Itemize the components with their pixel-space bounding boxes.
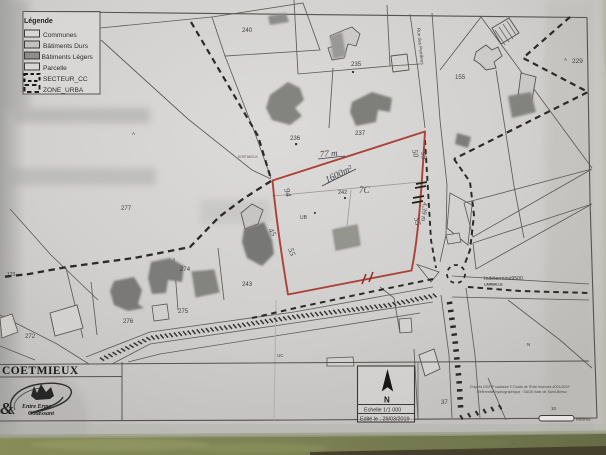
svg-text:ZONE_URBA: ZONE_URBA: [43, 87, 84, 94]
svg-text:95: 95: [419, 151, 429, 160]
svg-text:Parcelle: Parcelle: [43, 65, 67, 72]
svg-text:235: 235: [351, 61, 362, 68]
svg-text:7C: 7C: [359, 185, 371, 195]
svg-text:275: 275: [178, 308, 189, 315]
svg-text:UC: UC: [277, 353, 284, 358]
svg-text:Gouessant: Gouessant: [28, 411, 54, 417]
svg-text:274: 274: [180, 266, 191, 273]
svg-text:10: 10: [551, 406, 557, 411]
svg-text:SECTEUR_CC: SECTEUR_CC: [43, 76, 88, 83]
svg-text:Echelle 1/1 000: Echelle 1/1 000: [364, 408, 401, 414]
svg-text:A: A: [132, 131, 135, 136]
svg-text:D'après DGFiP cadastre © Droit: D'après DGFiP cadastre © Droits de l'Eta…: [470, 385, 569, 389]
svg-text:Edité le : 29/03/2019: Edité le : 29/03/2019: [360, 417, 409, 423]
svg-text:237: 237: [355, 130, 366, 137]
svg-text:Bâtiments Légers: Bâtiments Légers: [42, 54, 94, 61]
svg-text:236: 236: [290, 135, 301, 142]
svg-text:276: 276: [123, 318, 134, 325]
svg-text:Indéterminé9500: Indéterminé9500: [484, 276, 523, 282]
svg-text:UB: UB: [300, 215, 308, 221]
svg-text:Entre Erme: Entre Erme: [21, 404, 52, 410]
svg-text:SORTIMIEUX: SORTIMIEUX: [238, 155, 259, 159]
svg-text:240: 240: [242, 27, 253, 34]
svg-text:229: 229: [572, 58, 583, 65]
svg-text:242: 242: [338, 190, 347, 196]
svg-text:N: N: [527, 342, 530, 347]
svg-text:Légende: Légende: [24, 18, 53, 25]
svg-text:Bâtiments Durs: Bâtiments Durs: [43, 43, 89, 50]
svg-text:Communes: Communes: [43, 32, 77, 39]
svg-text:N: N: [384, 396, 390, 405]
svg-text:&: &: [0, 399, 14, 418]
svg-text:COETMIEUX: COETMIEUX: [2, 365, 79, 377]
svg-text:277: 277: [121, 205, 132, 212]
svg-text:Mètres: Mètres: [576, 417, 591, 423]
svg-text:155: 155: [455, 74, 466, 81]
svg-text:A: A: [564, 57, 567, 62]
svg-text:243: 243: [242, 281, 253, 288]
svg-text:37: 37: [441, 399, 448, 406]
svg-text:173: 173: [7, 272, 16, 278]
svg-text:272: 272: [25, 333, 36, 340]
svg-text:Référentiel hydrographique : S: Référentiel hydrographique : SAGE Baie d…: [477, 390, 567, 394]
svg-text:LAMBALLE: LAMBALLE: [484, 283, 503, 287]
